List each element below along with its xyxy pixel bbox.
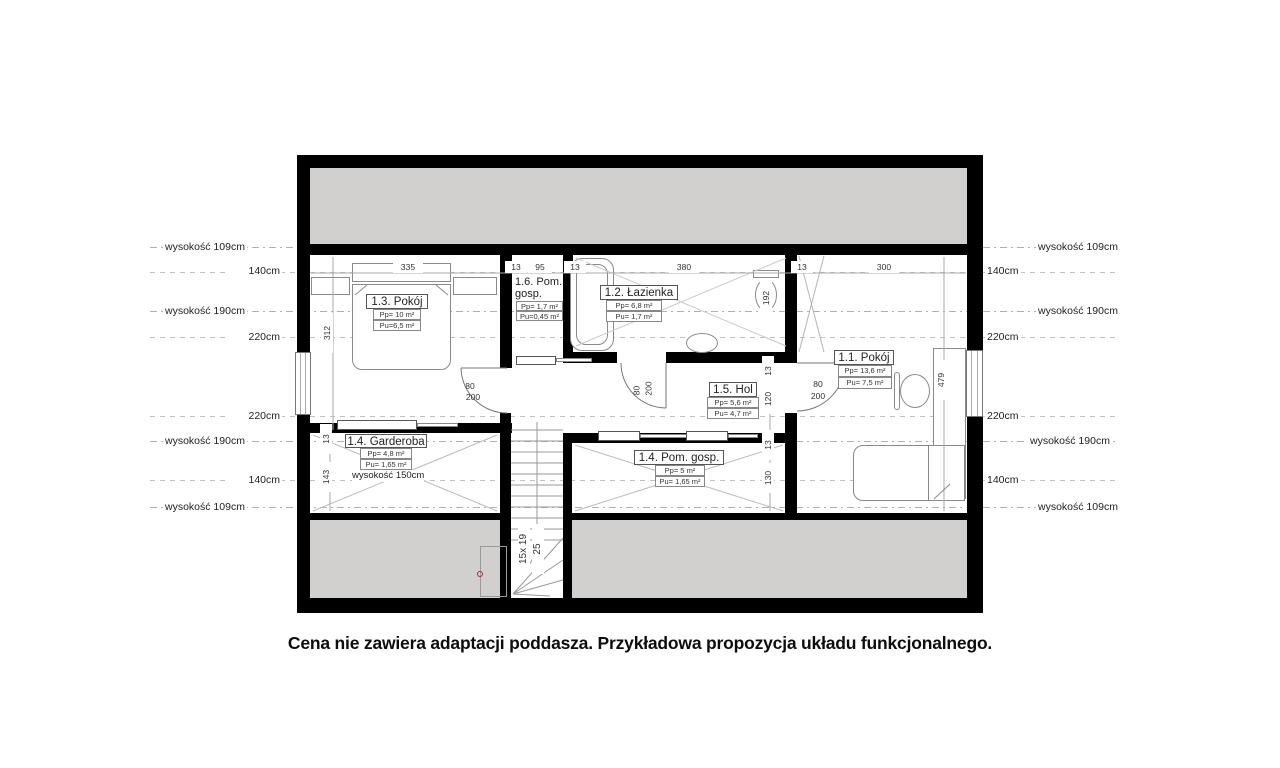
room-pu-13: Pu=6,5 m² xyxy=(373,320,421,331)
dim-335: 335 xyxy=(393,261,423,273)
window-left xyxy=(295,352,311,415)
knee-wall-bottom-right xyxy=(563,513,967,520)
wall-bath-hall-right xyxy=(666,352,795,363)
room-title-16-line2: gosp. xyxy=(515,288,542,300)
room-title-13: 1.3. Pokój xyxy=(366,294,428,309)
dim-95: 95 xyxy=(528,261,552,273)
room-title-14p: 1.4. Pom. gosp. xyxy=(634,450,724,465)
room-note-14g: wysokość 150cm xyxy=(352,470,424,482)
label-left-220-bottom: 220cm xyxy=(228,410,282,423)
sink xyxy=(686,333,718,353)
label-right-109-bottom: wysokość 109cm xyxy=(1036,501,1120,514)
room-pu-12: Pu= 1,7 m² xyxy=(606,311,662,322)
label-right-109-top: wysokość 109cm xyxy=(1036,241,1120,254)
label-left-140-top: 140cm xyxy=(228,265,282,278)
knee-wall-bottom-left xyxy=(310,513,500,520)
nightstand-right-13 xyxy=(453,277,497,295)
sliding-door-pomgosp-2 xyxy=(686,431,728,441)
room-pp-14g: Pp= 4,8 m² xyxy=(360,448,412,459)
sliding-door-16 xyxy=(516,356,556,365)
window-right-frame xyxy=(971,351,972,416)
room-pu-11: Pu= 7,5 m² xyxy=(838,377,892,389)
room-pu-15: Pu= 4,7 m² xyxy=(707,408,759,419)
dim-rs-120: 120 xyxy=(762,384,774,414)
window-right xyxy=(966,350,983,417)
label-left-220-top: 220cm xyxy=(228,331,282,344)
label-left-109-bottom: wysokość 109cm xyxy=(163,501,247,514)
room-pu-16: Pu=0,45 m² xyxy=(516,311,563,321)
wall-hall-11-lower xyxy=(785,413,797,520)
label-right-190-top: wysokość 190cm xyxy=(1036,305,1120,318)
sliding-track-garderoba xyxy=(417,423,458,427)
sliding-track-pomgosp-1 xyxy=(640,434,687,438)
bed-11 xyxy=(853,445,965,501)
label-left-190-bottom: wysokość 190cm xyxy=(163,435,247,448)
dim-13b: 13 xyxy=(564,261,586,273)
label-left-109-top: wysokość 109cm xyxy=(163,241,247,254)
label-left-140-bottom: 140cm xyxy=(228,474,282,487)
label-left-190-top: wysokość 190cm xyxy=(163,305,247,318)
room-pp-14p: Pp= 5 m² xyxy=(655,465,705,476)
dim-ls-143: 143 xyxy=(320,462,332,492)
toilet-tank xyxy=(753,270,779,278)
roof-slope-area-bottom-right xyxy=(572,520,967,598)
label-right-190-bottom: wysokość 190cm xyxy=(1028,435,1112,448)
roof-slope-area-bottom-left xyxy=(310,520,500,598)
chair-seat-11 xyxy=(900,374,930,408)
door-11-height: 200 xyxy=(804,391,832,402)
dim-380: 380 xyxy=(669,261,699,273)
dim-479: 479 xyxy=(935,360,947,400)
label-right-220-top: 220cm xyxy=(985,331,1021,344)
bed-11-divider xyxy=(928,446,929,500)
room-pp-13: Pp= 10 m² xyxy=(373,309,421,320)
dim-192: 192 xyxy=(760,278,772,318)
sliding-door-pomgosp-1 xyxy=(598,431,640,441)
door-11-width: 80 xyxy=(806,379,830,390)
outer-wall-top xyxy=(297,155,983,168)
door-13-height: 200 xyxy=(459,392,487,403)
room-title-11: 1.1. Pokój xyxy=(834,350,894,365)
outer-wall-bottom xyxy=(297,598,983,613)
stair-steps-label: 15x 19 xyxy=(518,524,530,574)
dim-300: 300 xyxy=(869,261,899,273)
dim-312: 312 xyxy=(321,313,333,353)
room-title-15: 1.5. Hol xyxy=(709,382,757,397)
dim-rs-130: 130 xyxy=(762,463,774,493)
room-pp-12: Pp= 6,8 m² xyxy=(606,300,662,311)
roof-slope-area-top xyxy=(310,168,967,244)
sliding-track-pomgosp-2 xyxy=(728,434,758,438)
room-pp-16: Pp= 1,7 m² xyxy=(516,301,563,311)
knee-wall-top xyxy=(310,244,967,255)
room-pp-11: Pp= 13,6 m² xyxy=(838,365,892,377)
sliding-door-garderoba xyxy=(337,420,417,430)
dim-rs-13a: 13 xyxy=(762,356,774,386)
door-bath-height: 200 xyxy=(644,375,655,403)
label-right-140-bottom: 140cm xyxy=(985,474,1021,487)
window-right-frame2 xyxy=(977,351,978,416)
bathtub-inner xyxy=(576,264,608,345)
stair-tread-label: 25 xyxy=(532,524,544,574)
room-pu-14p: Pu= 1,65 m² xyxy=(655,476,705,487)
label-right-220-bottom: 220cm xyxy=(985,410,1021,423)
window-left-frame xyxy=(300,353,301,414)
stair-under-roof-outline xyxy=(480,546,507,597)
sliding-track-16 xyxy=(556,358,592,362)
dim-ls-13: 13 xyxy=(320,424,332,454)
door-bath-width: 80 xyxy=(632,379,643,403)
label-right-140-top: 140cm xyxy=(985,265,1021,278)
room-pp-15: Pp= 5,6 m² xyxy=(707,397,759,408)
door-13-width: 80 xyxy=(458,381,482,392)
nightstand-left-13 xyxy=(311,277,350,295)
window-left-frame2 xyxy=(305,353,306,414)
room-title-12: 1.2. Łazienka xyxy=(600,285,678,300)
plan-caption: Cena nie zawiera adaptacji poddasza. Prz… xyxy=(0,633,1280,654)
dim-13a: 13 xyxy=(505,261,527,273)
floor-plan-canvas: 1.3. Pokój Pp= 10 m² Pu=6,5 m² 1.6. Pom.… xyxy=(0,0,1280,768)
stair-marker-dot xyxy=(477,571,483,577)
dim-rs-13b: 13 xyxy=(762,430,774,460)
room-title-14g: 1.4. Garderoba xyxy=(345,434,427,448)
dim-13c: 13 xyxy=(791,261,813,273)
room-title-16-line1: 1.6. Pom. xyxy=(515,276,562,288)
room-pu-14g: Pu= 1,65 m² xyxy=(360,459,412,470)
